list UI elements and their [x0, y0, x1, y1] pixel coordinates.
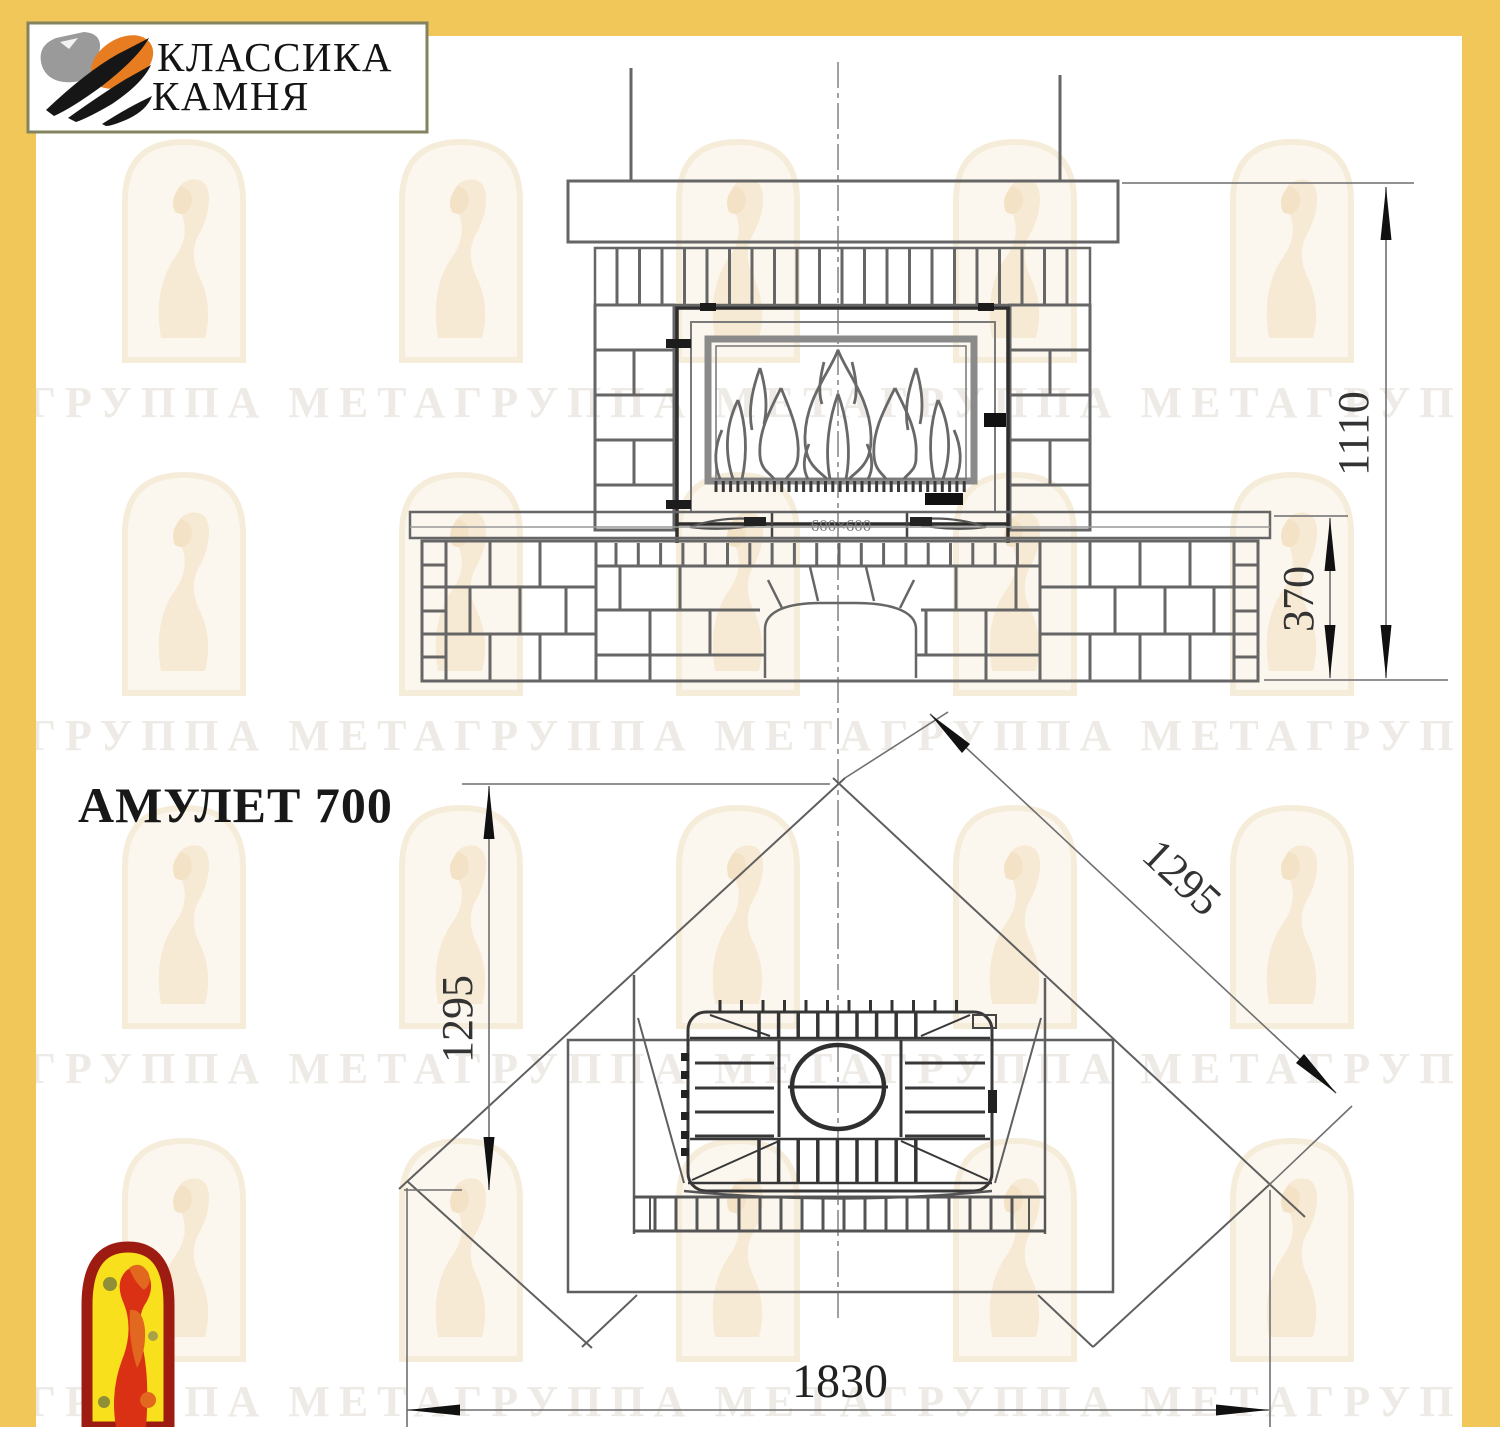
- svg-text:ГРУППА МЕТАГРУППА МЕТАГРУППА М: ГРУППА МЕТАГРУППА МЕТАГРУППА МЕТАГРУППА …: [28, 711, 1500, 760]
- svg-text:1110: 1110: [1329, 391, 1378, 476]
- svg-text:600×600: 600×600: [811, 516, 872, 535]
- svg-text:АМУЛЕТ 700: АМУЛЕТ 700: [78, 777, 393, 833]
- svg-text:1830: 1830: [792, 1355, 888, 1408]
- svg-text:ГРУППА МЕТАГРУППА МЕТАГРУППА М: ГРУППА МЕТАГРУППА МЕТАГРУППА МЕТАГРУППА …: [28, 1377, 1500, 1426]
- svg-text:370: 370: [1274, 566, 1323, 632]
- svg-text:КАМНЯ: КАМНЯ: [152, 73, 310, 119]
- svg-text:ГРУППА МЕТАГРУППА МЕТАГРУППА М: ГРУППА МЕТАГРУППА МЕТАГРУППА МЕТАГРУППА …: [28, 1044, 1500, 1093]
- svg-text:1295: 1295: [433, 975, 482, 1063]
